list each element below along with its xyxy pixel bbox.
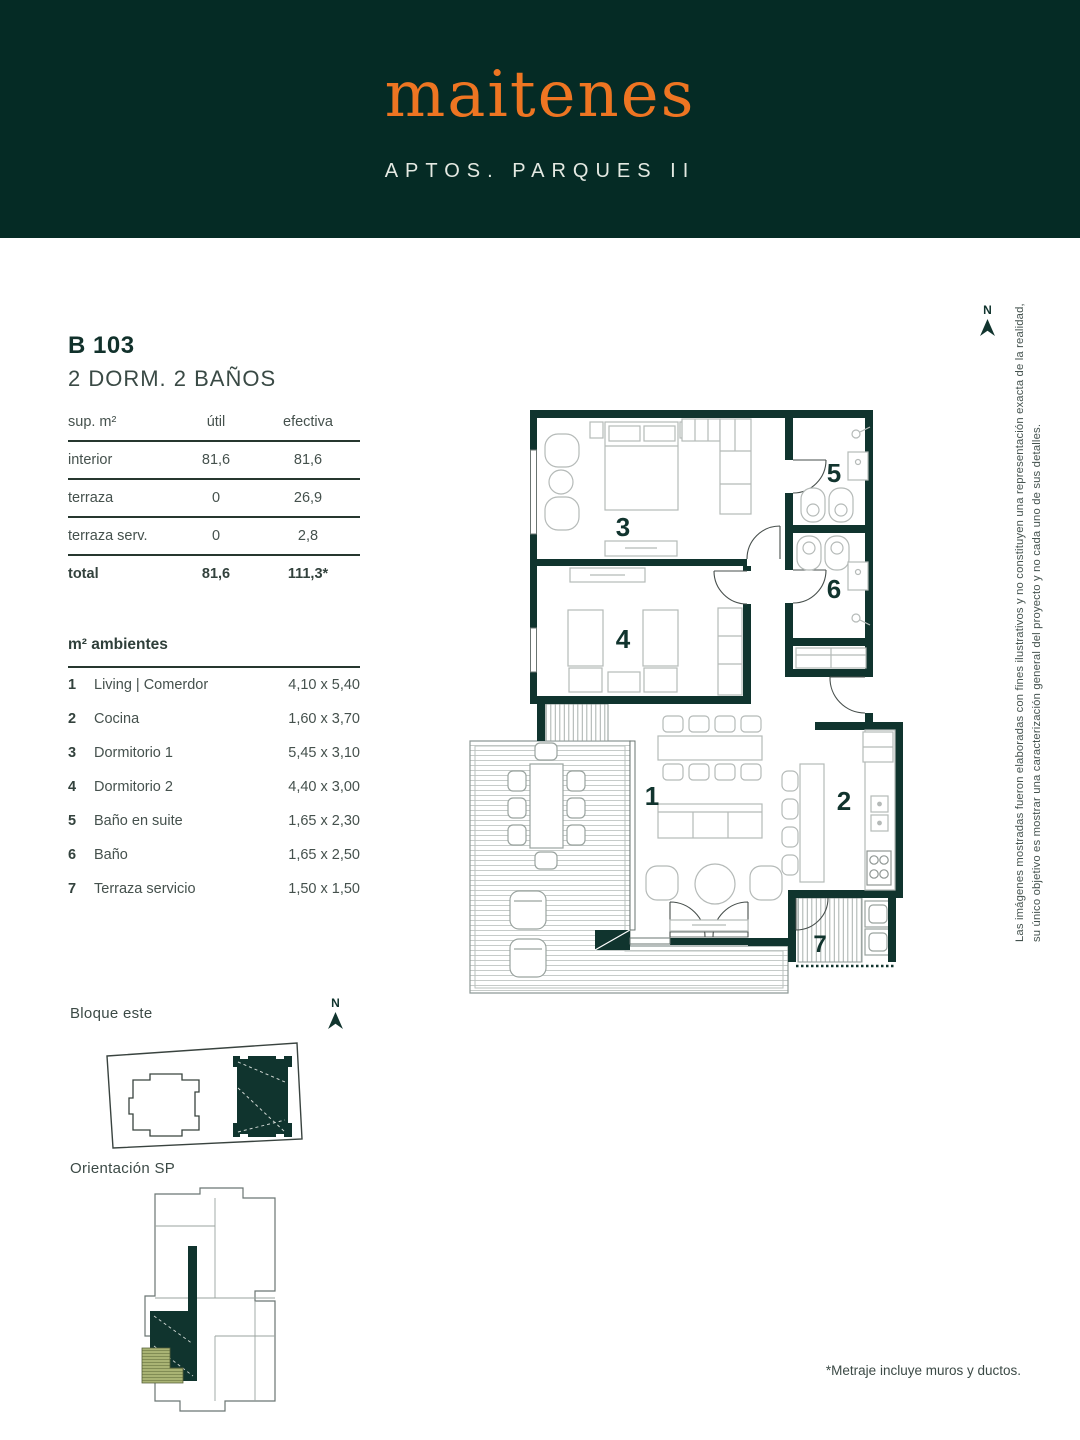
list-item: 2 Cocina 1,60 x 3,70 xyxy=(68,702,360,736)
room-number: 3 xyxy=(68,745,94,761)
label-terraza-serv: 7 xyxy=(813,931,826,958)
legal-disclaimer: Las imágenes mostradas fueron elaboradas… xyxy=(1012,302,1046,942)
row-label: total xyxy=(68,566,176,582)
site-building-east xyxy=(233,1056,292,1137)
room-name: Baño xyxy=(94,847,268,863)
rooms-list-title: m² ambientes xyxy=(68,636,360,668)
room-name: Terraza servicio xyxy=(94,881,268,897)
room-number: 1 xyxy=(68,677,94,693)
north-arrow-site: N xyxy=(328,996,343,1029)
brochure-page: maitenes APTOS. PARQUES II B 103 2 DORM.… xyxy=(0,0,1080,1440)
row-efectiva: 2,8 xyxy=(256,528,360,544)
room-dims: 4,40 x 3,00 xyxy=(268,779,360,795)
room-number: 2 xyxy=(68,711,94,727)
room-name: Baño en suite xyxy=(94,813,268,829)
label-banio: 6 xyxy=(827,574,841,604)
header-banner: maitenes APTOS. PARQUES II xyxy=(0,0,1080,238)
row-util: 81,6 xyxy=(176,452,256,468)
floor-plan: 1 2 3 4 5 6 7 xyxy=(430,396,990,1016)
surface-table-header: sup. m² útil efectiva xyxy=(68,408,360,442)
label-dorm1: 3 xyxy=(616,512,630,542)
room-name: Living | Comerdor xyxy=(94,677,268,693)
room-dims: 1,65 x 2,30 xyxy=(268,813,360,829)
surface-col-util: útil xyxy=(176,414,256,430)
brand-subtitle: APTOS. PARQUES II xyxy=(0,160,1080,183)
room-dims: 1,50 x 1,50 xyxy=(268,881,360,897)
label-dorm2: 4 xyxy=(616,624,631,654)
list-item: 1 Living | Comerdor 4,10 x 5,40 xyxy=(68,668,360,702)
list-item: 5 Baño en suite 1,65 x 2,30 xyxy=(68,804,360,838)
room-name: Dormitorio 1 xyxy=(94,745,268,761)
list-item: 7 Terraza servicio 1,50 x 1,50 xyxy=(68,872,360,906)
row-efectiva: 81,6 xyxy=(256,452,360,468)
key-plan xyxy=(125,1186,295,1421)
unit-code: B 103 xyxy=(68,332,135,360)
row-util: 0 xyxy=(176,490,256,506)
label-living: 1 xyxy=(645,781,659,811)
table-row: terraza serv. 0 2,8 xyxy=(68,518,360,556)
row-efectiva: 26,9 xyxy=(256,490,360,506)
list-item: 3 Dormitorio 1 5,45 x 3,10 xyxy=(68,736,360,770)
room-number: 6 xyxy=(68,847,94,863)
table-row: interior 81,6 81,6 xyxy=(68,442,360,480)
footnote: *Metraje incluye muros y ductos. xyxy=(826,1363,1021,1378)
table-row: terraza 0 26,9 xyxy=(68,480,360,518)
surface-col-label: sup. m² xyxy=(68,414,176,430)
row-label: terraza serv. xyxy=(68,528,176,544)
room-dims: 1,60 x 3,70 xyxy=(268,711,360,727)
row-util: 81,6 xyxy=(176,566,256,582)
row-label: interior xyxy=(68,452,176,468)
label-banio-suite: 5 xyxy=(827,458,841,488)
row-util: 0 xyxy=(176,528,256,544)
north-label: N xyxy=(331,996,340,1010)
furniture-living xyxy=(646,716,782,931)
row-label: terraza xyxy=(68,490,176,506)
room-number: 7 xyxy=(68,881,94,897)
surface-col-efectiva: efectiva xyxy=(256,414,360,430)
site-map xyxy=(100,1040,305,1152)
orientation-label: Orientación SP xyxy=(70,1160,175,1177)
rooms-list: m² ambientes 1 Living | Comerdor 4,10 x … xyxy=(68,636,360,906)
site-map-label: Bloque este xyxy=(70,1005,153,1022)
north-arrow-icon xyxy=(980,319,995,336)
unit-type: 2 DORM. 2 BAÑOS xyxy=(68,366,276,392)
room-dims: 4,10 x 5,40 xyxy=(268,677,360,693)
room-number: 5 xyxy=(68,813,94,829)
surface-table: sup. m² útil efectiva interior 81,6 81,6… xyxy=(68,408,360,592)
north-arrow-icon xyxy=(328,1012,343,1029)
furniture-dorm1 xyxy=(545,419,751,556)
room-name: Dormitorio 2 xyxy=(94,779,268,795)
room-name: Cocina xyxy=(94,711,268,727)
brand-logo: maitenes xyxy=(0,58,1080,132)
list-item: 4 Dormitorio 2 4,40 x 3,00 xyxy=(68,770,360,804)
row-efectiva: 111,3* xyxy=(256,566,360,582)
furniture-dorm2 xyxy=(568,568,742,695)
north-arrow-plan: N xyxy=(980,303,995,336)
label-cocina: 2 xyxy=(837,786,851,816)
room-number: 4 xyxy=(68,779,94,795)
room-dims: 1,65 x 2,50 xyxy=(268,847,360,863)
north-label: N xyxy=(983,303,992,317)
room-dims: 5,45 x 3,10 xyxy=(268,745,360,761)
site-building-west xyxy=(129,1074,199,1136)
service-terrace xyxy=(796,898,896,966)
table-row-total: total 81,6 111,3* xyxy=(68,556,360,592)
list-item: 6 Baño 1,65 x 2,50 xyxy=(68,838,360,872)
